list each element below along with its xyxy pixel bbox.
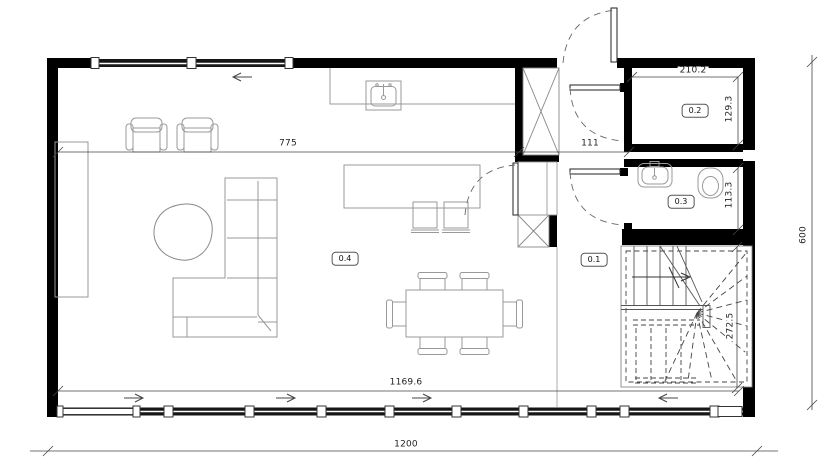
room-label-0-4: 0.4	[332, 252, 359, 266]
dimension-label-hall-width: 111	[579, 140, 601, 149]
dimension-label-glazed-wall-width: 1169.6	[388, 379, 425, 388]
living-room-door	[465, 163, 518, 215]
dining-chair	[387, 300, 407, 328]
wardrobe	[55, 142, 88, 297]
armchair	[177, 118, 218, 152]
dimension-label-room-02-depth: 129.3	[726, 94, 735, 125]
kitchen-sink	[366, 81, 401, 110]
hall-closet	[518, 162, 557, 215]
coffee-table	[154, 204, 212, 260]
dimension-label-building-depth: 600	[800, 224, 809, 246]
entrance-door-swing-arc	[563, 10, 616, 63]
kitchen-counter	[330, 68, 515, 104]
top-window	[91, 58, 293, 69]
corner-sofa	[173, 178, 277, 337]
room-label-0-2: 0.2	[682, 104, 709, 118]
dining-chair	[418, 273, 447, 291]
dining-chair	[460, 337, 489, 355]
dining-chair	[418, 337, 447, 355]
dimension-label-room-02-width: 210.2	[678, 67, 709, 76]
duct-shaft-lower	[518, 215, 549, 247]
room-label-0-3: 0.3	[668, 195, 695, 209]
bathroom-door-swing-arc	[570, 172, 622, 225]
duct-shaft-upper	[523, 68, 559, 155]
dining-chair	[460, 273, 489, 291]
vestibule-door-swing-arc	[570, 88, 622, 141]
dimension-label-living-width: 775	[277, 140, 299, 149]
bathroom-door	[570, 169, 622, 225]
slide-direction-arrows	[124, 73, 678, 402]
bar-stool	[442, 202, 470, 233]
floor-plan-drawing	[0, 0, 838, 470]
dimension-label-stair-well-depth: 272.5	[727, 311, 736, 342]
dining-chair	[503, 300, 523, 328]
bar-stool	[411, 202, 439, 233]
dimension-label-room-03-depth: 113.3	[726, 180, 735, 211]
toilet	[698, 168, 723, 198]
vestibule-door	[570, 85, 622, 141]
dimension-label-building-width: 1200	[392, 441, 420, 450]
floor-plan-canvas: 775 111 210.2 129.3 113.3 272.5 1169.6 1…	[0, 0, 838, 470]
room-label-0-1: 0.1	[581, 253, 608, 267]
dining-table	[406, 290, 503, 337]
armchair	[126, 118, 167, 152]
entrance-door	[563, 8, 617, 63]
glazed-sliding-wall	[57, 406, 743, 417]
